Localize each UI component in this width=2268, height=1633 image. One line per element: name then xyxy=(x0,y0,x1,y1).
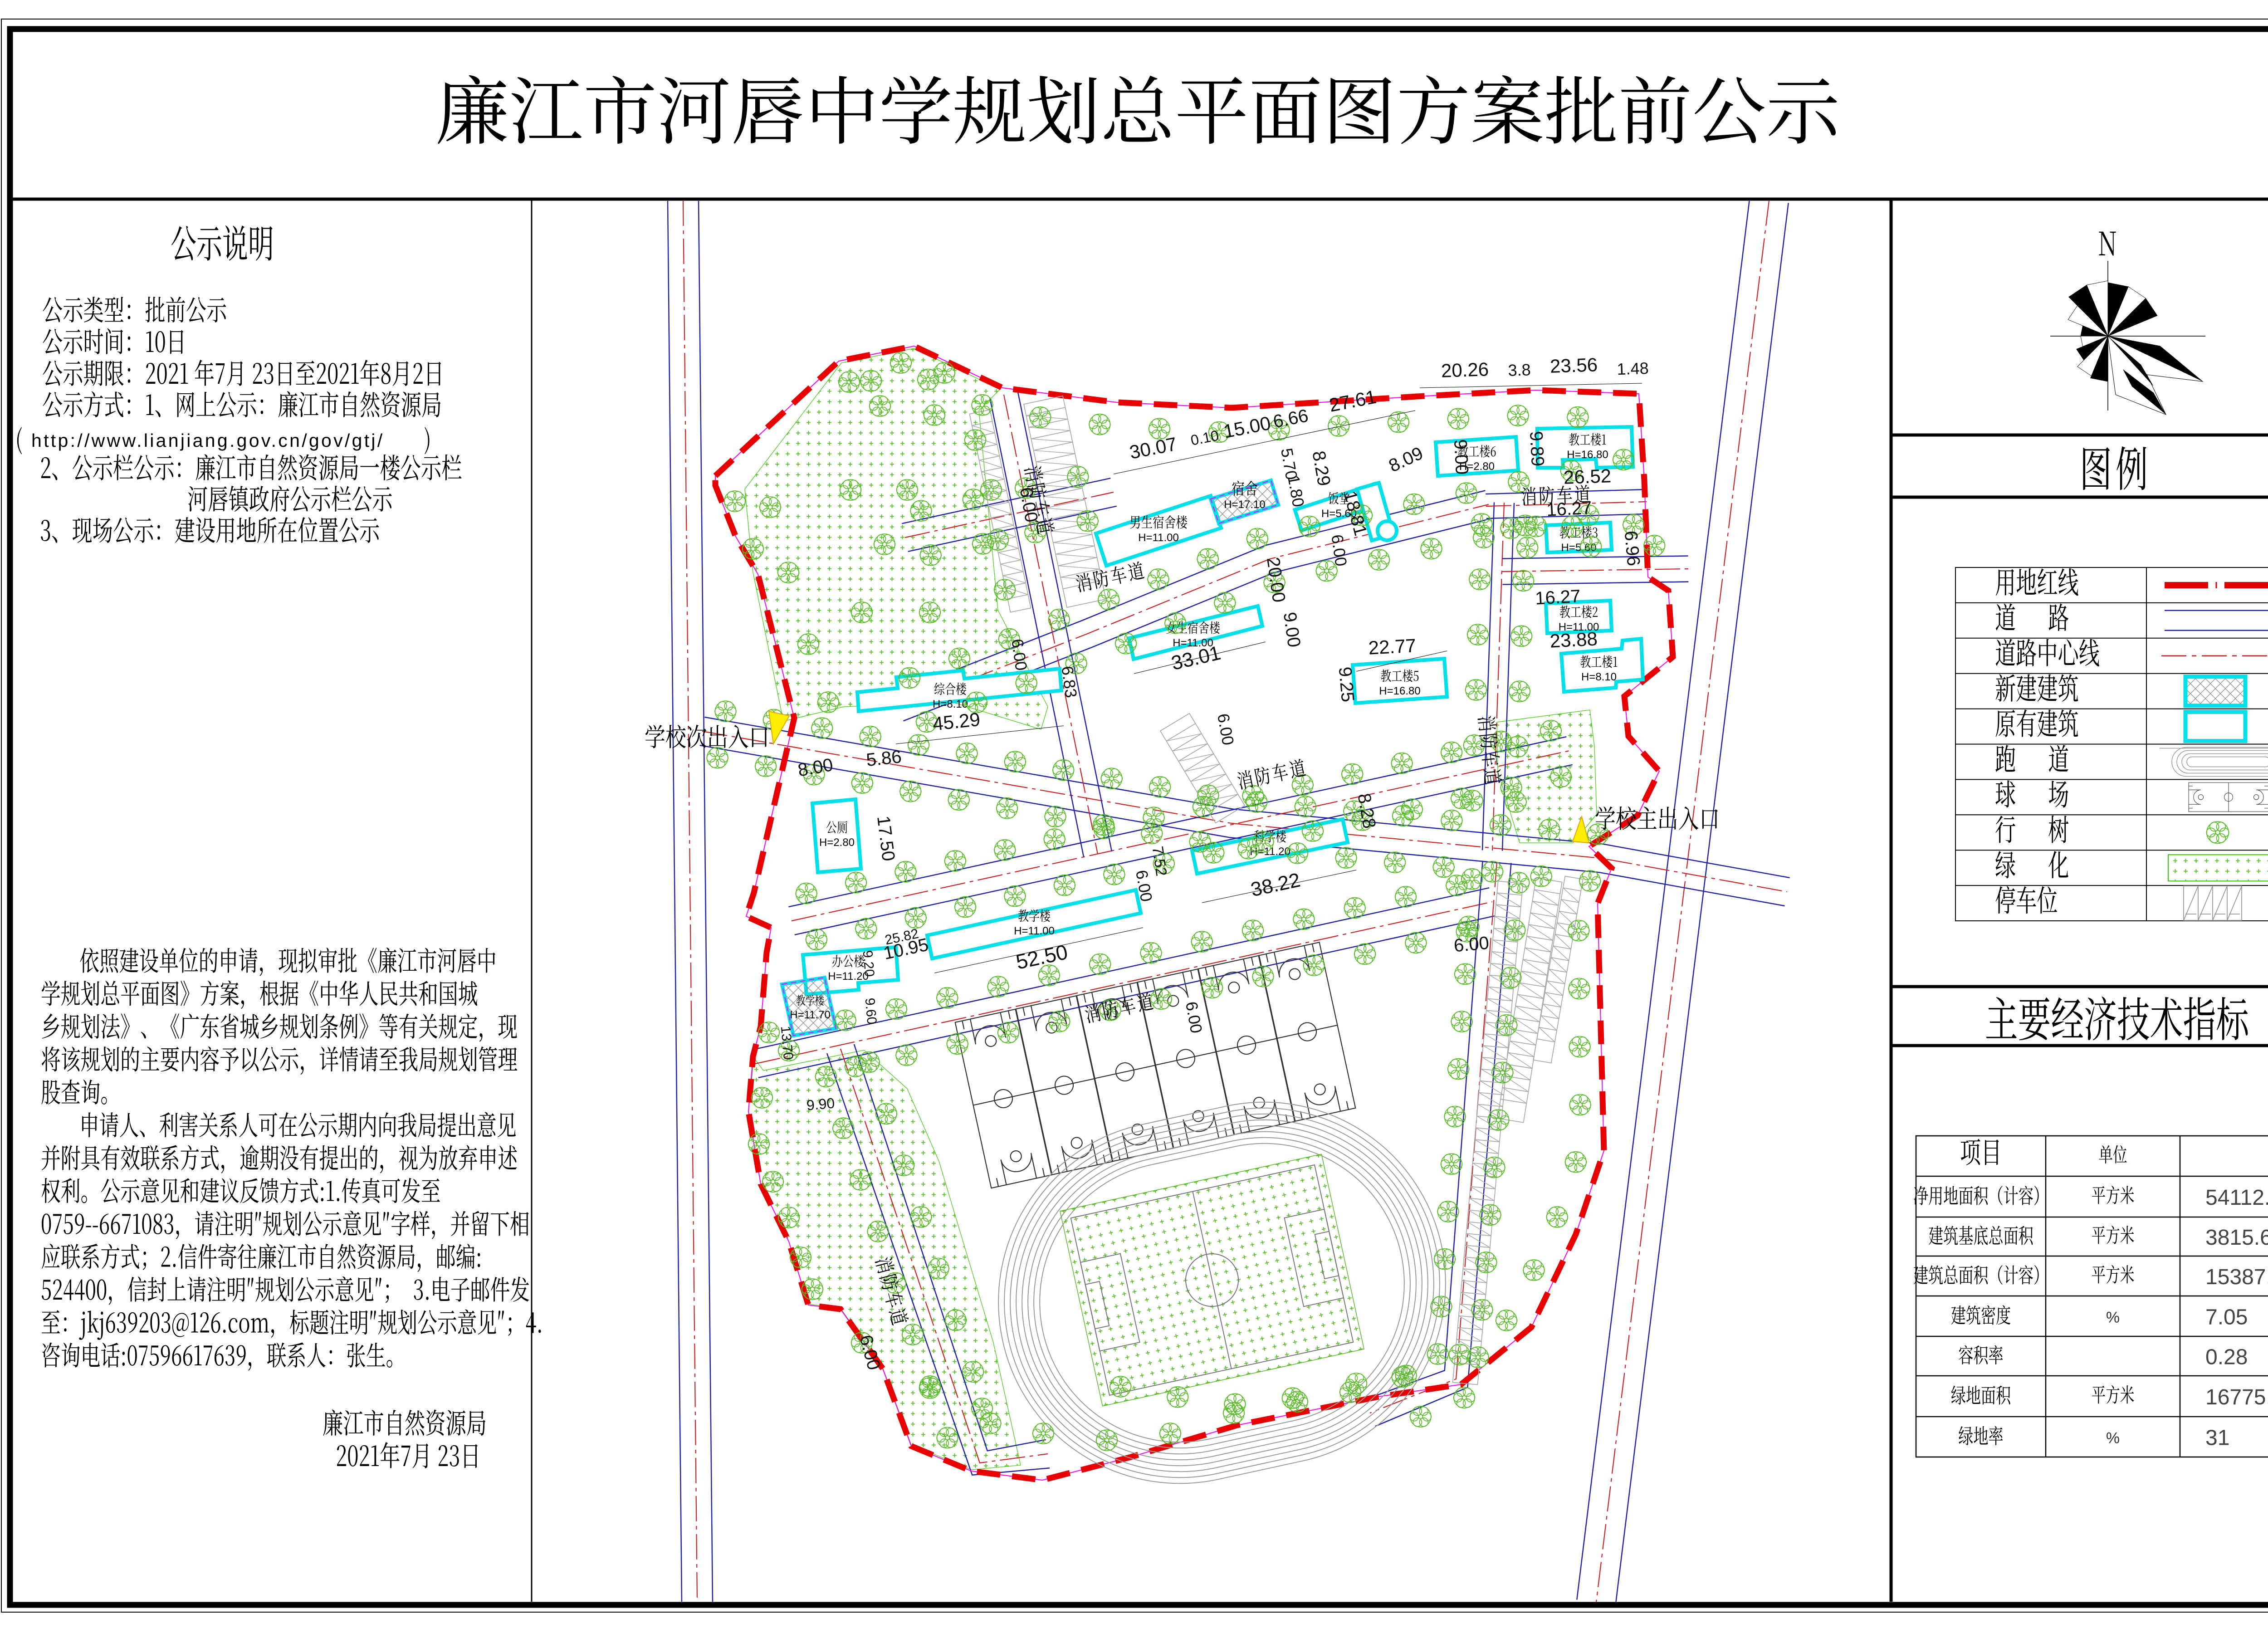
svg-text:16.27: 16.27 xyxy=(1546,498,1592,520)
svg-text:15387.28: 15387.28 xyxy=(2205,1265,2268,1289)
svg-text:3815.67: 3815.67 xyxy=(2205,1226,2268,1250)
svg-text:54112.69: 54112.69 xyxy=(2205,1186,2268,1210)
svg-text:20.26: 20.26 xyxy=(1441,358,1489,381)
svg-text:3.8: 3.8 xyxy=(1508,360,1531,380)
svg-text:9.89: 9.89 xyxy=(1526,430,1548,467)
svg-text:1.48: 1.48 xyxy=(1617,359,1649,378)
svg-text:H=17.10: H=17.10 xyxy=(1224,499,1265,511)
svg-text:http://www.lianjiang.gov.cn/go: http://www.lianjiang.gov.cn/gov/gtj/ xyxy=(31,430,385,451)
svg-text:H=11.70: H=11.70 xyxy=(790,1009,831,1021)
svg-text:5.86: 5.86 xyxy=(865,747,903,770)
svg-text:H=2.80: H=2.80 xyxy=(819,836,855,849)
svg-text:26.52: 26.52 xyxy=(1563,465,1612,488)
svg-text:%: % xyxy=(2106,1309,2120,1326)
svg-text:H=11.00: H=11.00 xyxy=(1014,925,1055,937)
svg-text:0.28: 0.28 xyxy=(2205,1345,2248,1369)
svg-text:9.25: 9.25 xyxy=(1335,666,1358,703)
svg-text:9.90: 9.90 xyxy=(806,1095,835,1113)
svg-text:22.77: 22.77 xyxy=(1368,635,1417,658)
svg-text:9.00: 9.00 xyxy=(1450,439,1472,475)
svg-text:6.96: 6.96 xyxy=(1621,530,1644,567)
svg-text:23.88: 23.88 xyxy=(1549,628,1598,651)
svg-text:16775.00: 16775.00 xyxy=(2205,1385,2268,1409)
svg-text:H=16.80: H=16.80 xyxy=(1379,685,1420,697)
svg-text:16.27: 16.27 xyxy=(1535,586,1581,608)
svg-text:9.20: 9.20 xyxy=(860,950,877,978)
svg-text:H=16.80: H=16.80 xyxy=(1567,449,1608,461)
svg-text:%: % xyxy=(2106,1430,2120,1447)
svg-text:31: 31 xyxy=(2205,1426,2229,1450)
svg-text:9.60: 9.60 xyxy=(862,997,879,1025)
svg-text:H=8.10: H=8.10 xyxy=(933,698,968,710)
svg-text:7.05: 7.05 xyxy=(2205,1305,2248,1330)
svg-text:6.00: 6.00 xyxy=(1453,933,1490,956)
svg-text:H=8.10: H=8.10 xyxy=(1581,671,1617,683)
svg-text:13.70: 13.70 xyxy=(778,1025,796,1061)
svg-text:23.56: 23.56 xyxy=(1549,354,1598,377)
svg-text:H=11.00: H=11.00 xyxy=(1138,532,1179,544)
